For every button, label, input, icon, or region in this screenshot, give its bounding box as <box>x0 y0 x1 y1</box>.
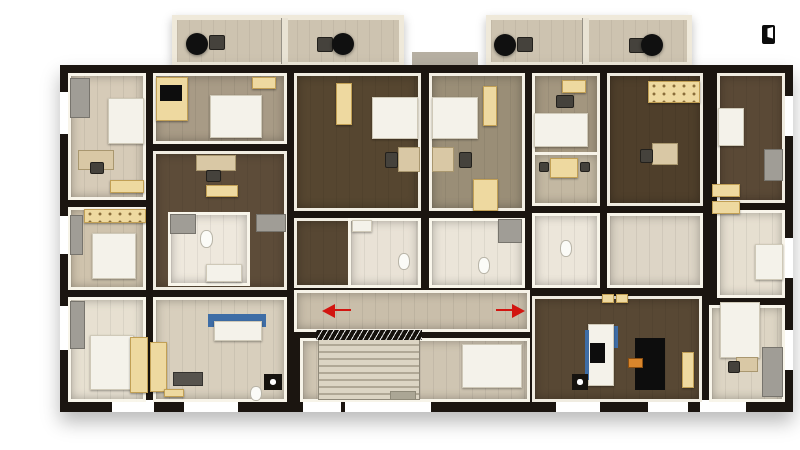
bathtub <box>206 264 242 282</box>
stair-railing <box>316 330 422 340</box>
kitchen-counter <box>84 209 146 223</box>
shower <box>498 219 522 243</box>
shelf <box>762 347 783 397</box>
patio-table <box>332 33 354 55</box>
room-bedroom-center-west <box>294 73 421 211</box>
balcony-divider <box>582 18 589 64</box>
room-hall-east <box>607 213 703 288</box>
refrigerator <box>92 233 136 279</box>
bed <box>108 98 144 144</box>
patio-table <box>494 34 516 56</box>
bed <box>718 108 744 146</box>
dresser <box>110 180 144 193</box>
coffee-table <box>206 185 238 197</box>
dresser <box>712 201 740 214</box>
toilet <box>398 253 410 270</box>
shelf <box>764 149 783 181</box>
stove <box>572 374 588 390</box>
desk <box>432 147 454 172</box>
door-icon[interactable] <box>762 25 775 44</box>
room-living-east <box>532 296 702 402</box>
desk <box>398 147 420 172</box>
stool <box>602 294 614 303</box>
desk-chair <box>385 152 398 168</box>
wardrobe <box>483 86 497 126</box>
patio-chair <box>317 37 333 52</box>
tv <box>160 85 182 101</box>
desk-chair <box>459 152 472 168</box>
wardrobe <box>336 83 352 125</box>
wardrobe <box>150 342 167 392</box>
wardrobe <box>473 179 498 211</box>
kitchen-counter <box>648 81 700 103</box>
patio-chair <box>517 37 533 52</box>
exit-line-left <box>335 309 351 311</box>
chair <box>539 162 549 172</box>
stool <box>616 294 628 303</box>
desk-chair <box>640 149 653 163</box>
stove <box>264 374 282 390</box>
dresser <box>712 184 740 197</box>
shelf <box>70 301 85 349</box>
patio-table <box>186 33 208 55</box>
desk-chair <box>728 361 740 373</box>
cabinet <box>164 389 184 397</box>
appliance <box>256 214 286 232</box>
desk <box>196 155 236 171</box>
cabinet <box>682 352 694 388</box>
elevator <box>462 344 522 388</box>
shower <box>170 214 196 234</box>
desk-chair <box>556 95 574 108</box>
exit-line-right <box>496 309 512 311</box>
wardrobe-white <box>755 244 783 280</box>
toilet <box>250 386 262 401</box>
sink <box>352 220 372 232</box>
bed <box>432 97 478 139</box>
desk <box>652 143 678 165</box>
kitchen-island <box>214 321 262 341</box>
shelf <box>70 215 83 255</box>
toilet <box>200 230 213 248</box>
desk-chair <box>206 170 221 182</box>
orange-chair <box>628 358 643 368</box>
bed <box>720 302 760 358</box>
bed <box>210 95 262 138</box>
dresser <box>252 77 276 89</box>
washer <box>173 372 203 386</box>
patio-table <box>641 34 663 56</box>
shelf <box>70 78 90 118</box>
balcony-divider <box>281 18 288 64</box>
floor-plan-canvas <box>0 0 800 450</box>
patio-chair <box>209 35 225 50</box>
counter-blue <box>585 330 589 380</box>
dining-table <box>550 158 578 178</box>
toilet <box>478 257 490 274</box>
wardrobe <box>130 337 148 393</box>
bed <box>90 335 134 390</box>
desk-chair <box>90 162 104 174</box>
floor-mat <box>390 391 416 400</box>
bed <box>372 97 418 139</box>
toilet <box>560 240 572 257</box>
dresser <box>562 80 586 93</box>
oven <box>590 343 605 363</box>
bed <box>534 113 588 147</box>
chair <box>580 162 590 172</box>
